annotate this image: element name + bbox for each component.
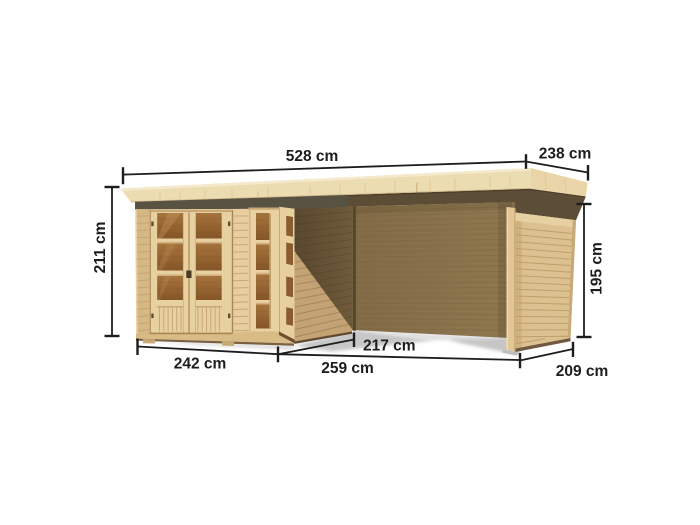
svg-text:238 cm: 238 cm (539, 146, 592, 163)
svg-text:217 cm: 217 cm (363, 338, 416, 355)
svg-text:195 cm: 195 cm (589, 242, 606, 295)
svg-text:259 cm: 259 cm (321, 360, 374, 377)
svg-text:209 cm: 209 cm (556, 363, 609, 380)
svg-text:211 cm: 211 cm (92, 222, 109, 274)
svg-text:528 cm: 528 cm (286, 148, 339, 165)
svg-text:242 cm: 242 cm (174, 356, 227, 373)
